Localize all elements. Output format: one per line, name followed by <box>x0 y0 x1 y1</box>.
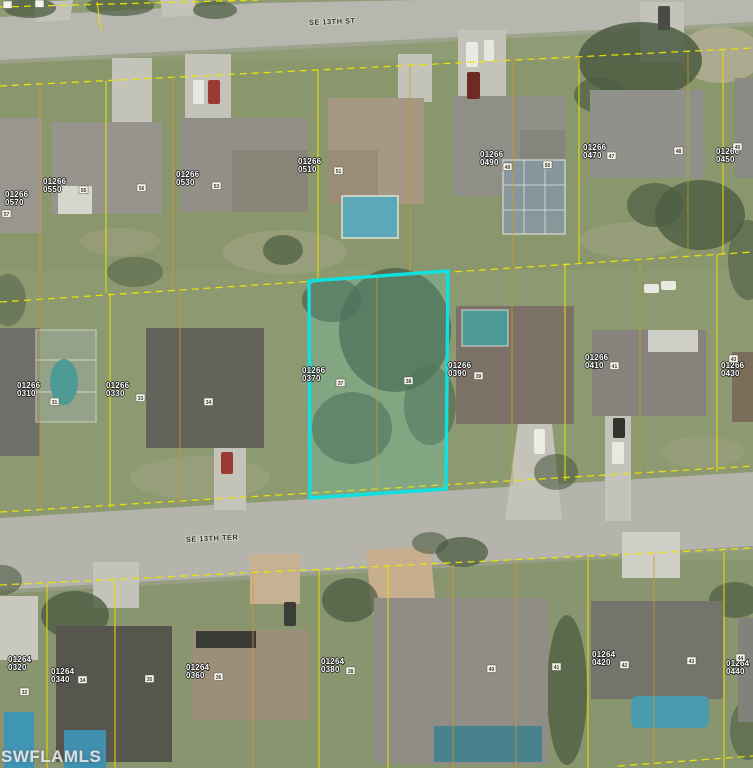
svg-text:47: 47 <box>609 154 615 160</box>
platted-lot-number-box: 32 <box>20 688 29 696</box>
svg-text:36: 36 <box>216 675 222 681</box>
platted-lot-number-box: 34 <box>204 398 213 406</box>
building-roof <box>232 150 308 212</box>
platted-lot-number-box: 38 <box>346 667 355 675</box>
parked-car <box>484 40 494 61</box>
platted-lot-number-box: 36 <box>214 673 223 681</box>
platted-lot-number-box <box>35 0 44 8</box>
parked-car <box>284 602 296 626</box>
platted-lot-number-box: 34 <box>78 676 87 684</box>
svg-text:41: 41 <box>554 665 560 671</box>
platted-lot-number-box: 55 <box>79 186 88 194</box>
platted-lot-number-box: 44 <box>736 654 745 662</box>
driveway <box>458 30 506 104</box>
swimming-pool <box>434 726 542 762</box>
svg-text:53: 53 <box>214 184 220 190</box>
svg-text:34: 34 <box>206 400 212 406</box>
swimming-pool <box>342 196 398 238</box>
driveway <box>398 54 432 102</box>
platted-lot-number-box: 41 <box>610 362 619 370</box>
svg-text:39: 39 <box>476 374 482 380</box>
swimming-pool <box>462 310 508 346</box>
street-label-se-13th-st: SE 13TH ST <box>309 16 356 27</box>
svg-text:37: 37 <box>338 381 344 387</box>
platted-lot-number-box: 42 <box>620 661 629 669</box>
parked-car <box>193 80 204 104</box>
svg-text:57: 57 <box>4 212 10 218</box>
swimming-pool <box>631 696 709 728</box>
highlighted-parcel-outline <box>309 271 448 498</box>
platted-lot-number-box: 37 <box>336 379 345 387</box>
svg-text:40: 40 <box>489 667 495 673</box>
driveway <box>250 554 300 604</box>
building-roof <box>146 328 264 448</box>
platted-lot-number-box: 51 <box>334 167 343 175</box>
platted-lot-number-box: 43 <box>729 355 738 363</box>
svg-text:51: 51 <box>336 169 342 175</box>
platted-lot-number-box <box>3 1 12 9</box>
solar-panels <box>196 631 256 648</box>
mls-watermark: SWFLAMLS <box>1 747 101 767</box>
parked-car <box>658 6 670 30</box>
svg-text:35: 35 <box>147 677 153 683</box>
svg-text:55: 55 <box>81 188 87 194</box>
svg-text:38: 38 <box>348 669 354 675</box>
platted-lot-number-box: 45 <box>733 143 742 151</box>
parked-car <box>208 80 220 104</box>
building-roof <box>648 330 698 352</box>
pool-screen-enclosure <box>36 330 96 422</box>
parked-car <box>534 429 545 454</box>
svg-text:44: 44 <box>738 656 744 662</box>
pool-screen-enclosure <box>0 596 38 660</box>
platted-lot-number-box: 38 <box>404 377 413 385</box>
platted-lot-number-box: 33 <box>136 394 145 402</box>
building-roof <box>735 78 753 178</box>
satellite-map-image: 0126605700126605500126605300126605100126… <box>0 0 753 768</box>
svg-text:42: 42 <box>622 663 628 669</box>
platted-lot-number-box: 43 <box>687 657 696 665</box>
parked-car <box>467 72 480 99</box>
platted-lot-number-box: 39 <box>474 372 483 380</box>
driveway <box>160 0 196 17</box>
platted-lot-number-box: 35 <box>145 675 154 683</box>
svg-text:49: 49 <box>505 165 511 171</box>
svg-text:32: 32 <box>22 690 28 696</box>
parked-car <box>644 284 659 293</box>
svg-text:43: 43 <box>689 659 695 665</box>
driveway <box>622 532 680 578</box>
aerial-parcel-map: 0126605700126605500126605300126605100126… <box>0 0 753 768</box>
svg-text:56: 56 <box>139 186 145 192</box>
svg-text:38: 38 <box>406 379 412 385</box>
svg-text:34: 34 <box>80 678 86 684</box>
platted-lot-number-box: 57 <box>2 210 11 218</box>
platted-lot-number-box: 53 <box>212 182 221 190</box>
svg-text:31: 31 <box>52 400 58 406</box>
svg-text:48: 48 <box>676 149 682 155</box>
platted-lot-number-box: 41 <box>552 663 561 671</box>
platted-lot-number-box: 56 <box>137 184 146 192</box>
driveway <box>112 58 152 132</box>
pool-screen-enclosure <box>503 160 565 234</box>
svg-text:33: 33 <box>138 396 144 402</box>
parked-car <box>221 452 233 474</box>
parked-car <box>661 281 676 290</box>
parked-car <box>612 442 624 464</box>
parked-car <box>466 42 478 67</box>
svg-text:43: 43 <box>731 357 737 363</box>
platted-lot-number-box: 50 <box>543 161 552 169</box>
svg-text:41: 41 <box>612 364 618 370</box>
platted-lot-number-box: 40 <box>487 665 496 673</box>
platted-lot-number-box: 48 <box>674 147 683 155</box>
platted-lot-number-box: 31 <box>50 398 59 406</box>
platted-lot-number-box: 49 <box>503 163 512 171</box>
platted-lot-number-box: 47 <box>607 152 616 160</box>
svg-text:50: 50 <box>545 163 551 169</box>
parked-car <box>613 418 625 438</box>
svg-text:45: 45 <box>735 145 741 151</box>
